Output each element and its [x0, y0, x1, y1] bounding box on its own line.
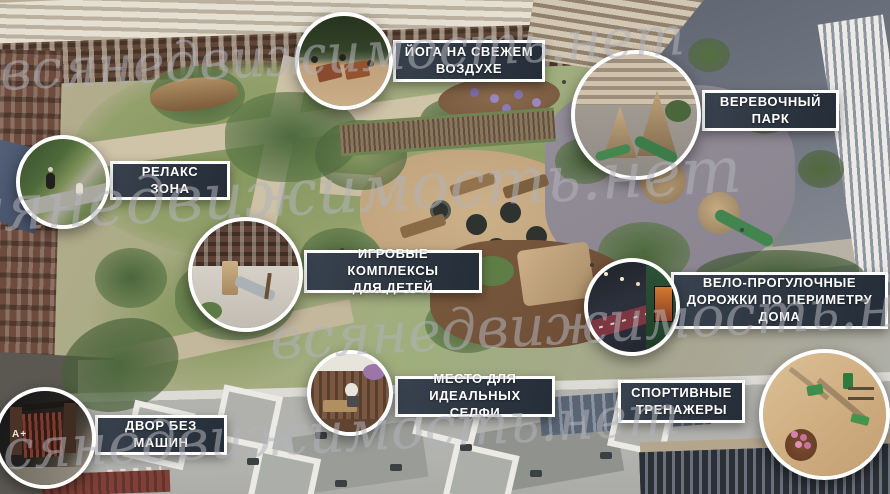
label-selfie-line1: МЕСТО ДЛЯ: [406, 371, 544, 388]
label-rope-park: ВЕРЕВОЧНЫЙ ПАРК: [702, 90, 839, 131]
lavender-dots: [470, 88, 479, 97]
label-kids-line2: ДЛЯ ДЕТЕЙ: [315, 280, 471, 297]
ropepark-tree: [665, 100, 691, 122]
sport-planter-flowers: [791, 431, 798, 438]
label-rope-line2: ПАРК: [713, 111, 828, 128]
label-selfie-line2: ИДЕАЛЬНЫХ СЕЛФИ: [406, 388, 544, 422]
courtyard-masterplan: А+ ЙОГА НА СВЕЖЕМ ВОЗДУХЕ ВЕРЕВОЧНЫЙ ПАР…: [0, 0, 890, 494]
label-bike-line1: ВЕЛО-ПРОГУЛОЧНЫЕ: [682, 275, 877, 292]
kidsplay-photo-building: [192, 221, 299, 266]
label-relax-line1: РЕЛАКС: [121, 164, 219, 181]
yoga-person-3: [367, 60, 374, 67]
bike-lit-artwork: [654, 286, 673, 322]
label-sport-line1: СПОРТИВНЫЕ: [629, 385, 734, 402]
label-sport-equipment: СПОРТИВНЫЕ ТРЕНАЖЕРЫ: [618, 380, 745, 423]
yoga-photo-circle: [295, 12, 393, 110]
gate-ground: [0, 467, 92, 485]
plaza-tree-3: [798, 150, 844, 188]
label-bike-line2: ДОРОЖКИ ПО ПЕРИМЕТРУ: [682, 292, 877, 309]
kidsplay-bush: [198, 302, 222, 320]
label-kids-playgrounds: ИГРОВЫЕ КОМПЛЕКСЫ ДЛЯ ДЕТЕЙ: [304, 250, 482, 293]
sport-rack-bar: [848, 387, 874, 390]
label-yoga: ЙОГА НА СВЕЖЕМ ВОЗДУХЕ: [393, 40, 545, 82]
selfie-person-skirt: [347, 396, 359, 407]
relax-person-2: [76, 183, 83, 195]
yoga-person-1: [311, 56, 318, 63]
relax-photo-circle: [16, 135, 110, 229]
label-yard-line1: ДВОР БЕЗ: [106, 418, 216, 435]
gate-sign: А+: [12, 429, 27, 440]
bike-paths-photo-circle: [584, 258, 680, 356]
label-sport-line2: ТРЕНАЖЕРЫ: [629, 402, 734, 419]
relax-person-1-head: [48, 167, 53, 172]
gate-post-right: [64, 403, 76, 453]
sport-photo-circle: [759, 349, 890, 480]
sport-planter: [785, 429, 817, 461]
label-kids-line1: ИГРОВЫЕ КОМПЛЕКСЫ: [315, 246, 471, 280]
deck-canopy: [516, 241, 595, 306]
selfie-flowers: [363, 364, 385, 380]
label-yoga-line2: ВОЗДУХЕ: [404, 61, 534, 78]
tree-cluster-4: [95, 248, 167, 308]
yoga-person-2: [339, 54, 346, 61]
label-rope-line1: ВЕРЕВОЧНЫЙ: [713, 94, 828, 111]
selfie-photo-circle: [307, 350, 393, 436]
sport-photo-ground: [763, 353, 886, 476]
rope-park-photo-circle: [571, 50, 701, 180]
label-relax-line2: ЗОНА: [121, 181, 219, 198]
selfie-person-torso: [345, 383, 358, 397]
label-yoga-line1: ЙОГА НА СВЕЖЕМ: [404, 44, 534, 61]
kids-play-photo-circle: [188, 217, 303, 332]
selfie-deck: [311, 419, 389, 432]
label-yard-line2: МАШИН: [106, 435, 216, 452]
label-bike-line3: ДОМА: [682, 309, 877, 326]
gate-leaf: [22, 412, 64, 458]
label-relax-zone: РЕЛАКС ЗОНА: [110, 161, 230, 200]
ropepark-photo-building: [575, 54, 697, 105]
relax-person-1: [46, 173, 55, 189]
label-car-free-yard: ДВОР БЕЗ МАШИН: [95, 415, 227, 455]
label-selfie-spot: МЕСТО ДЛЯ ИДЕАЛЬНЫХ СЕЛФИ: [395, 376, 555, 417]
label-bike-paths: ВЕЛО-ПРОГУЛОЧНЫЕ ДОРОЖКИ ПО ПЕРИМЕТРУ ДО…: [671, 272, 888, 329]
bike-lamp-dots: [604, 272, 608, 276]
car-free-photo-circle: А+: [0, 387, 96, 489]
